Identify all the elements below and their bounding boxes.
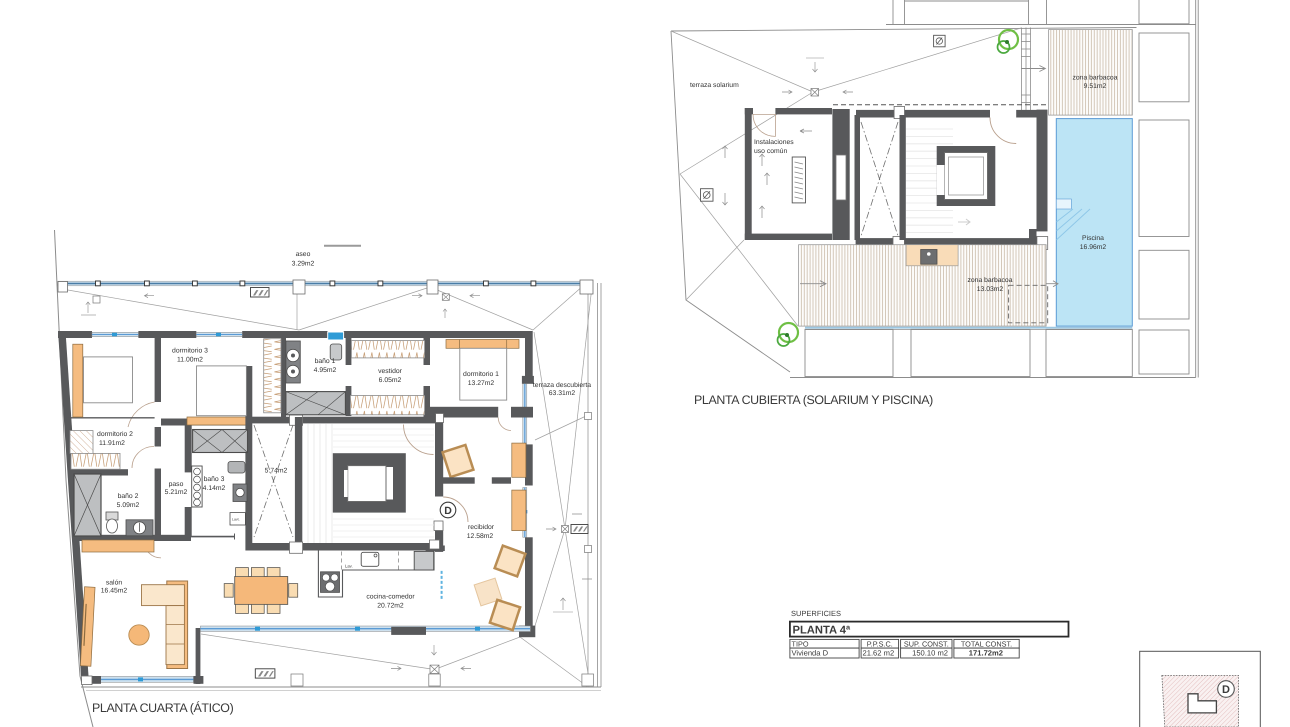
- svg-text:baño 1: baño 1: [315, 358, 336, 365]
- svg-text:D: D: [1222, 684, 1230, 696]
- svg-text:dormitorio 2: dormitorio 2: [97, 431, 133, 438]
- svg-text:SUP. CONST.: SUP. CONST.: [904, 639, 949, 648]
- svg-text:Lav.: Lav.: [345, 564, 353, 569]
- svg-text:aseo: aseo: [296, 251, 311, 258]
- svg-text:recibidor: recibidor: [468, 524, 495, 531]
- svg-text:3.29m2: 3.29m2: [292, 261, 315, 268]
- svg-text:Instalaciones: Instalaciones: [754, 139, 794, 146]
- svg-text:13.27m2: 13.27m2: [468, 380, 495, 387]
- svg-text:171.72m2: 171.72m2: [969, 649, 1003, 658]
- svg-text:TIPO: TIPO: [792, 639, 809, 648]
- svg-text:11.00m2: 11.00m2: [177, 357, 203, 364]
- svg-text:paso: paso: [169, 481, 184, 488]
- svg-text:zona barbacoa: zona barbacoa: [1073, 75, 1118, 82]
- svg-text:dormitorio 3: dormitorio 3: [172, 348, 208, 355]
- svg-text:salón: salón: [106, 580, 122, 587]
- svg-text:Piscina: Piscina: [1082, 235, 1104, 242]
- svg-text:6.05m2: 6.05m2: [379, 377, 402, 384]
- svg-text:12.58m2: 12.58m2: [467, 533, 494, 540]
- svg-text:16.45m2: 16.45m2: [101, 588, 128, 595]
- svg-text:vestidor: vestidor: [378, 368, 403, 375]
- svg-text:PLANTA CUARTA (ÁTICO): PLANTA CUARTA (ÁTICO): [92, 701, 234, 715]
- svg-text:Vivienda D: Vivienda D: [792, 649, 829, 658]
- svg-text:D: D: [444, 505, 452, 517]
- svg-text:baño 3: baño 3: [204, 476, 225, 483]
- svg-text:PLANTA CUBIERTA (SOLARIUM Y PI: PLANTA CUBIERTA (SOLARIUM Y PISCINA): [694, 393, 933, 407]
- svg-text:5.74m2: 5.74m2: [265, 468, 288, 475]
- svg-text:4.95m2: 4.95m2: [314, 367, 337, 374]
- svg-text:21.62 m2: 21.62 m2: [863, 649, 895, 658]
- svg-text:Lavt.: Lavt.: [232, 518, 240, 522]
- svg-text:150.10 m2: 150.10 m2: [912, 649, 948, 658]
- svg-text:5.21m2: 5.21m2: [165, 489, 188, 496]
- svg-text:dormitorio 1: dormitorio 1: [463, 371, 499, 378]
- svg-text:20.72m2: 20.72m2: [377, 603, 404, 610]
- svg-text:PLANTA 4ª: PLANTA 4ª: [793, 625, 851, 637]
- svg-text:uso común: uso común: [754, 148, 787, 155]
- svg-text:cocina-comedor: cocina-comedor: [366, 594, 415, 601]
- svg-text:terraza descubierta: terraza descubierta: [533, 382, 591, 389]
- svg-text:5.09m2: 5.09m2: [117, 502, 140, 509]
- svg-text:P.P.S.C.: P.P.S.C.: [867, 639, 893, 648]
- svg-text:16.96m2: 16.96m2: [1080, 244, 1107, 251]
- svg-text:SUPERFICIES: SUPERFICIES: [791, 609, 841, 618]
- svg-text:zona barbacoa: zona barbacoa: [968, 277, 1013, 284]
- svg-text:13.03m2: 13.03m2: [977, 286, 1004, 293]
- svg-text:terraza solarium: terraza solarium: [690, 82, 739, 89]
- svg-text:baño 2: baño 2: [118, 493, 139, 500]
- svg-text:TOTAL CONST.: TOTAL CONST.: [961, 639, 1012, 648]
- svg-text:63.31m2: 63.31m2: [549, 390, 576, 397]
- svg-text:9.51m2: 9.51m2: [1084, 83, 1107, 90]
- svg-text:4.14m2: 4.14m2: [203, 485, 226, 492]
- svg-text:11.91m2: 11.91m2: [99, 440, 125, 447]
